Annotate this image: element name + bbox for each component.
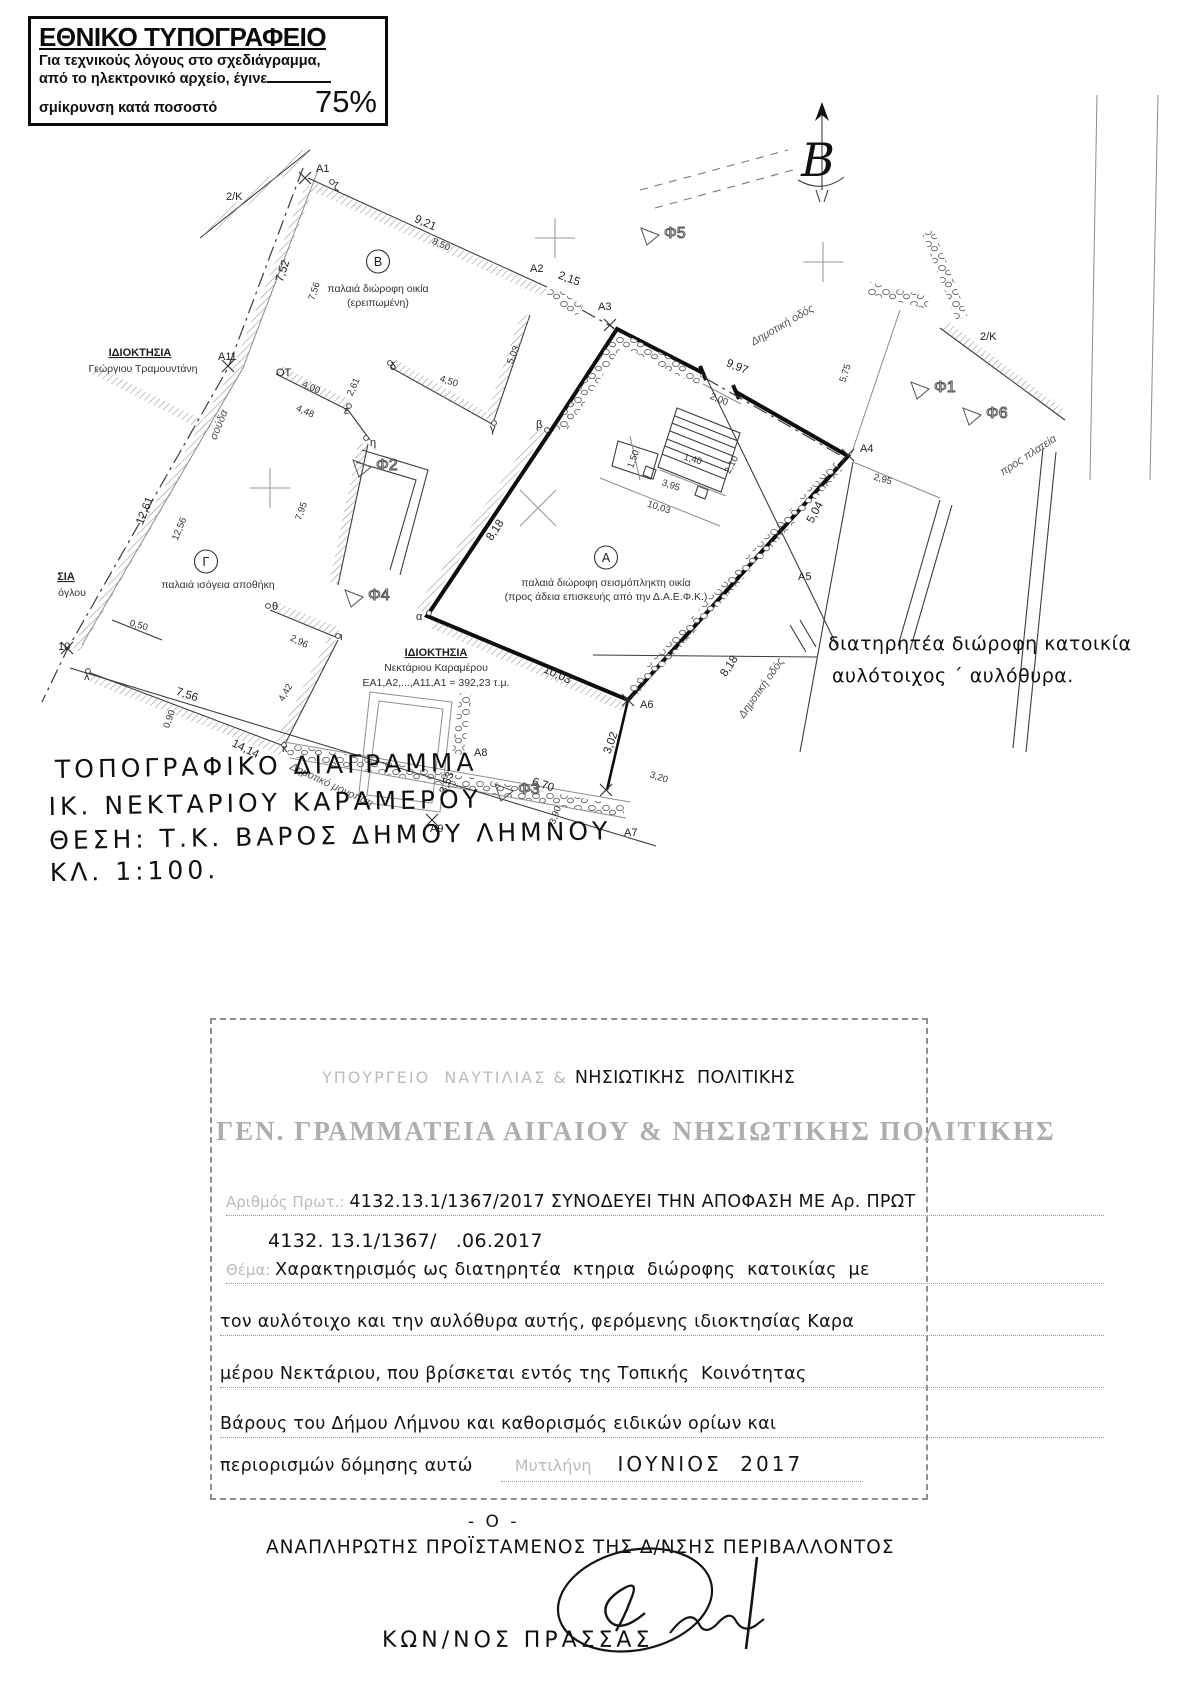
plan-label: (ερειπωμένη) [347,297,409,309]
plan-label: A2 [530,263,543,275]
plan-label: 0,50 [128,618,149,634]
stone-wall-A2-A3 [549,291,580,311]
site-plan-svg: Β [0,0,1177,900]
title-block: ΤΟΠΟΓΡΑΦΙΚΟ ΔΙΑΓΡΑΜΜΑ ΙΚ. ΝΕΚΤΑΡΙΟΥ ΚΑΡΑ… [48,745,612,887]
plan-label: λ [84,671,90,683]
secretariat-line: ΓΕΝ. ΓΡΑΜΜΑΤΕΙΑ ΑΙΓΑΙΟΥ & ΝΗΣΙΩΤΙΚΗΣ ΠΟΛ… [216,1116,1122,1147]
plan-label: Δημοτική οδός [736,655,787,721]
plan-label: 7,95 [293,501,310,522]
date-handwritten: ΙΟΥΝΙΟΣ 2017 [617,1452,803,1476]
plan-label: ε [344,405,349,417]
plan-boundaries [42,95,1158,846]
plan-label: Α [602,551,611,565]
plan-label: ι [340,631,343,643]
boundary-A1-A2 [308,178,547,287]
title-block-line-4: ΚΛ. 1:100. [50,855,220,887]
plan-label: Γ [203,555,210,569]
plan-label: 2/Κ [980,331,997,343]
plan-label: Β [374,255,382,269]
plan-label: ΙΔΙΟΚΤΗΣΙΑ [405,647,468,659]
printing-office-notice-box: ΕΘΝΙΚΟ ΤΥΠΟΓΡΑΦΕΙΟ Για τεχνικούς λόγους … [28,16,388,126]
plan-label: ΣΙΑ [57,571,75,583]
plan-label: ζ [334,181,339,193]
plan-label: Φ3 [518,781,540,798]
plan-label: A11 [218,351,237,363]
view-cone-icon [963,408,981,425]
plan-label: 8,18 [484,518,506,543]
house-A-outline [420,329,848,790]
plan-label: Γεώργιου Τραμουντάνη [88,363,197,375]
title-block-line-3: ΘΕΣΗ: Τ.Κ. ΒΑΡΟΣ ΔΗΜΟΥ ΛΗΜΝΟΥ [49,816,612,855]
subject-line-3: μέρου Νεκτάριου, που βρίσκεται εντός της… [220,1364,1104,1388]
signature-dash-o: - Ο - [468,1512,519,1532]
plan-label: η [370,437,376,449]
plan-label: α [416,611,423,623]
subject-line-2: τον αυλότοιχο και την αυλόθυρα αυτής, φε… [220,1312,1104,1336]
plan-label: προς πλατεία [998,432,1059,478]
plan-label: 0,90 [161,709,178,730]
plan-label: Νεκτάριου Καραμέρου [384,662,488,674]
stone-wall-corner [928,232,962,318]
view-cone-icon [345,590,363,607]
plan-label: ΟΤ [276,367,292,379]
plan-label: παλαιά ισόγεια αποθήκη [161,579,274,591]
plan-label: 5,75 [838,363,854,384]
subject-line-5: περιορισμών δόμησης αυτώΜυτιλήνηΙΟΥΝΙΟΣ … [220,1452,1104,1482]
reduction-percent: 75% [315,86,377,117]
plan-label: 8,18 [718,654,740,679]
plan-label: A1 [316,163,329,175]
plan-label: 10,03 [646,499,672,517]
plan-label: 2,96 [288,633,309,651]
plan-label: 2,00 [708,391,729,408]
ministry-line: ΥΠΟΥΡΓΕΙΟ ΝΑΥΤΙΛΙΑΣ & ΝΗΣΙΩΤΙΚΗΣ ΠΟΛΙΤΙΚ… [322,1068,795,1088]
plan-label: 3,95 [660,478,681,494]
protocol-line-2: 4132. 13.1/1367/ .06.2017 [268,1230,543,1252]
title-block-line-2: ΙΚ. ΝΕΚΤΑΡΙΟΥ ΚΑΡΑΜΕΡΟΥ [48,785,482,822]
plan-label: ΙΔΙΟΚΤΗΣΙΑ [109,347,172,359]
plan-label: A5 [798,571,811,583]
plan-label: Δημοτική οδός [748,302,816,348]
plan-label: 2,95 [872,472,893,488]
notice-line-1: Για τεχνικούς λόγους στο σχεδιάγραμμα, [39,53,377,71]
plan-label: 5,03 [505,344,522,365]
north-label: Β [800,133,835,187]
plan-label: 2,10 [723,454,741,475]
plan-label: A6 [640,699,653,711]
plan-label: 4,42 [276,682,295,704]
plan-label: παλαιά διώροφη σεισμόπληκτη οικία [521,577,690,589]
plan-label: 1,50 [625,449,642,470]
notice-line-3: σμίκρυνση κατά ποσοστό [39,100,217,118]
view-cone-icon [641,228,659,245]
annotation-leaders [593,375,838,657]
plan-labels: A1ζ2/Κ9,218,50Βπαλαιά διώροφη οικία(ερει… [57,163,1059,839]
north-arrow: Β [798,102,844,202]
plan-label: 12,56 [170,516,189,542]
plan-label: θ [272,601,278,613]
annotation-line-1: διατηρητέα διώροφη κατοικία [828,633,1132,655]
plan-label: ΕΑ1,Α2,...,Α11,Α1 = 392,23 τ.μ. [363,677,510,689]
plan-label: (προς άδεια επισκευής από την Δ.Α.Ε.Φ.Κ.… [505,591,708,603]
fill-in-rule [267,71,331,83]
plan-label: A4 [860,443,873,455]
building-line-OT [42,168,303,702]
plan-label: παλαιά διώροφη οικία [327,283,428,295]
protocol-line: Αριθμός Πρωτ.: 4132.13.1/1367/2017 ΣΥΝΟΔ… [226,1192,1104,1216]
plan-label: 1,40 [682,452,703,468]
view-cone-icon [911,382,929,399]
subject-line-4: Βάρους του Δήμου Λήμνου και καθορισμός ε… [220,1414,1104,1438]
plan-label: Φ6 [986,405,1008,422]
plan-label: 3,20 [648,770,669,786]
annotation-line-2: αυλότοιχος ΄ αυλόθυρα. [832,665,1074,687]
place-label: Μυτιλήνη [515,1456,592,1475]
boundary-lambda-kappa [88,672,284,746]
plan-label: 2/Κ [226,191,243,203]
place-date: ΜυτιλήνηΙΟΥΝΙΟΣ 2017 [501,1452,864,1482]
plan-label: 4,48 [294,403,315,421]
notice-bottom-row: σμίκρυνση κατά ποσοστό 75% [39,86,377,117]
plan-label: 10 [58,641,70,653]
plan-label: 2,15 [556,270,581,289]
plan-label: όγλου [58,587,86,599]
subject-line-1: Θέμα: Χαρακτηρισμός ως διατηρητέα κτηρια… [226,1260,1104,1284]
plan-label: Φ1 [934,379,956,396]
plan-label: Φ4 [368,587,390,604]
plan-label: 2,61 [345,376,363,397]
plan-label: 7,56 [174,686,199,704]
plan-label: Φ2 [376,457,398,474]
signatory-name: ΚΩΝ/ΝΟΣ ΠΡΑΣΣΑΣ [382,1628,653,1653]
plan-label: δ [390,361,396,373]
plan-label: 10,03 [542,664,573,687]
plan-label: A7 [624,827,637,839]
plan-label: Φ5 [664,225,686,242]
plan-label: γ [490,423,496,435]
ministry-stamp-box: ΥΠΟΥΡΓΕΙΟ ΝΑΥΤΙΛΙΑΣ & ΝΗΣΙΩΤΙΚΗΣ ΠΟΛΙΤΙΚ… [210,1018,928,1500]
plan-label: 9,97 [724,357,749,377]
plan-label: A3 [598,301,611,313]
plan-label: β [536,419,542,431]
plan-label: 7,56 [307,281,323,302]
notice-title: ΕΘΝΙΚΟ ΤΥΠΟΓΡΑΦΕΙΟ [39,22,377,53]
